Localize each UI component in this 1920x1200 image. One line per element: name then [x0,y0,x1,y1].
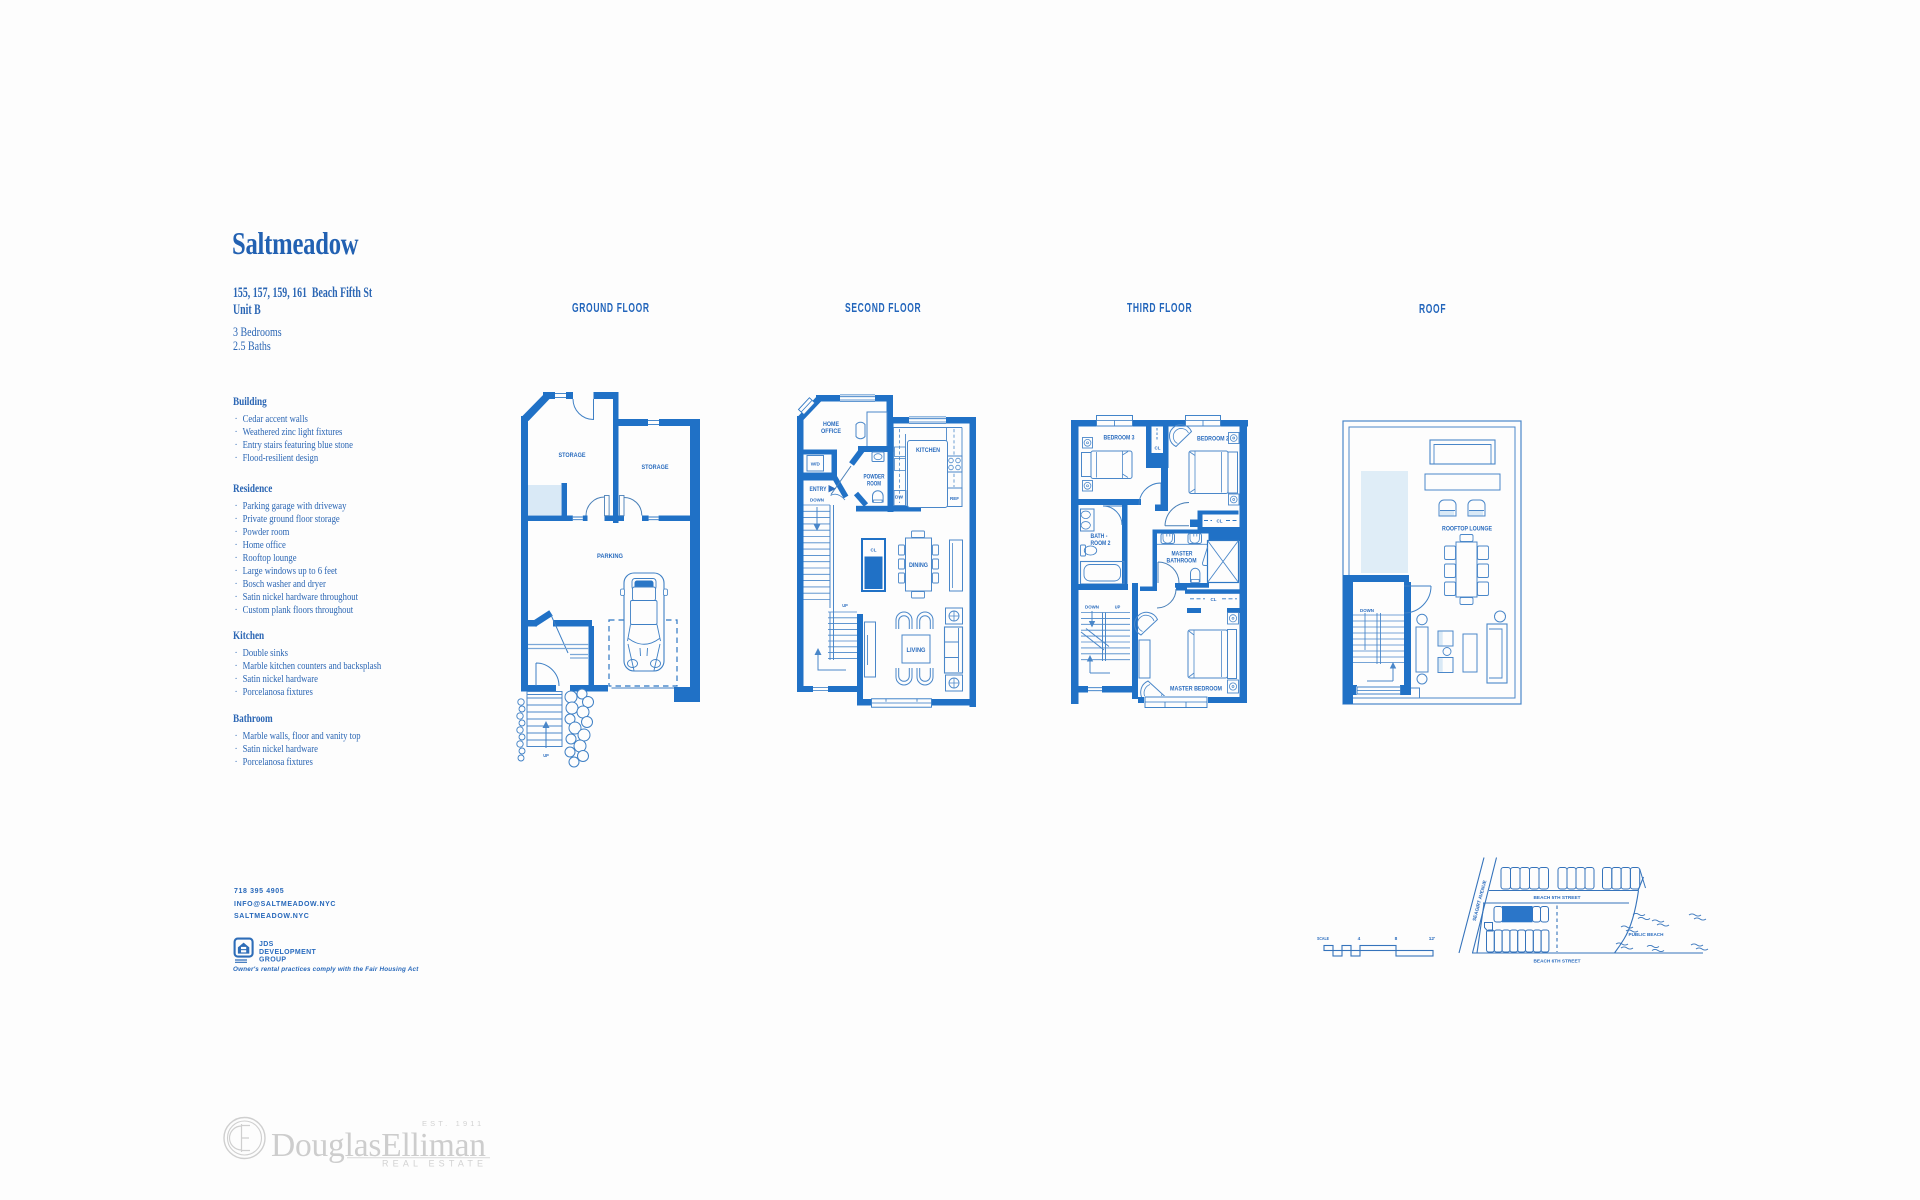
svg-text:CL: CL [1217,519,1223,525]
svg-text:ROOM: ROOM [867,481,881,488]
svg-text:CL: CL [1211,597,1217,603]
svg-text:REF: REF [950,496,959,502]
svg-text:UP: UP [543,753,549,758]
svg-text:MASTER BEDROOM: MASTER BEDROOM [1170,686,1222,693]
svg-text:HOME: HOME [823,421,839,428]
svg-text:DINING: DINING [909,562,928,569]
svg-text:8: 8 [1395,936,1398,942]
svg-text:BEDROOM 2: BEDROOM 2 [1197,436,1229,443]
svg-text:CL: CL [1155,446,1161,452]
svg-text:POWDER: POWDER [864,474,885,481]
svg-text:12': 12' [1429,936,1435,942]
svg-text:BATH -: BATH - [1091,533,1108,540]
svg-text:DOWN: DOWN [1360,608,1375,613]
svg-text:KITCHEN: KITCHEN [916,447,940,454]
svg-text:REAL ESTATE: REAL ESTATE [382,1159,487,1169]
svg-text:BEDROOM 3: BEDROOM 3 [1104,435,1135,442]
svg-text:UP: UP [1115,605,1121,610]
svg-text:STORAGE: STORAGE [642,464,669,471]
svg-text:W/D: W/D [811,462,821,468]
svg-text:DOWN: DOWN [1085,605,1100,610]
svg-text:CL: CL [871,548,877,554]
svg-text:JDS: JDS [259,941,274,948]
svg-text:DOWN: DOWN [810,498,825,503]
svg-text:PARKING: PARKING [597,553,623,560]
svg-text:PUBLIC BEACH: PUBLIC BEACH [1629,932,1665,938]
svg-text:4: 4 [1358,936,1361,942]
svg-text:SCALE: SCALE [1317,936,1330,942]
svg-text:LIVING: LIVING [907,647,926,654]
svg-text:UP: UP [842,603,848,608]
svg-text:DW: DW [895,495,903,501]
svg-text:MASTER: MASTER [1172,551,1193,558]
svg-text:EST. 1911: EST. 1911 [422,1119,484,1128]
svg-text:ROOFTOP LOUNGE: ROOFTOP LOUNGE [1442,526,1492,533]
svg-text:DEVELOPMENT: DEVELOPMENT [259,949,317,956]
svg-text:BEACH 6TH STREET: BEACH 6TH STREET [1534,959,1581,965]
svg-text:ENTRY: ENTRY [810,487,827,493]
svg-text:STORAGE: STORAGE [559,452,586,459]
svg-text:BATHROOM: BATHROOM [1167,558,1197,565]
svg-text:ROOM 2: ROOM 2 [1091,540,1111,547]
svg-text:BEACH 5TH STREET: BEACH 5TH STREET [1534,895,1581,901]
svg-text:GROUP: GROUP [259,957,286,964]
svg-text:OFFICE: OFFICE [821,428,841,435]
